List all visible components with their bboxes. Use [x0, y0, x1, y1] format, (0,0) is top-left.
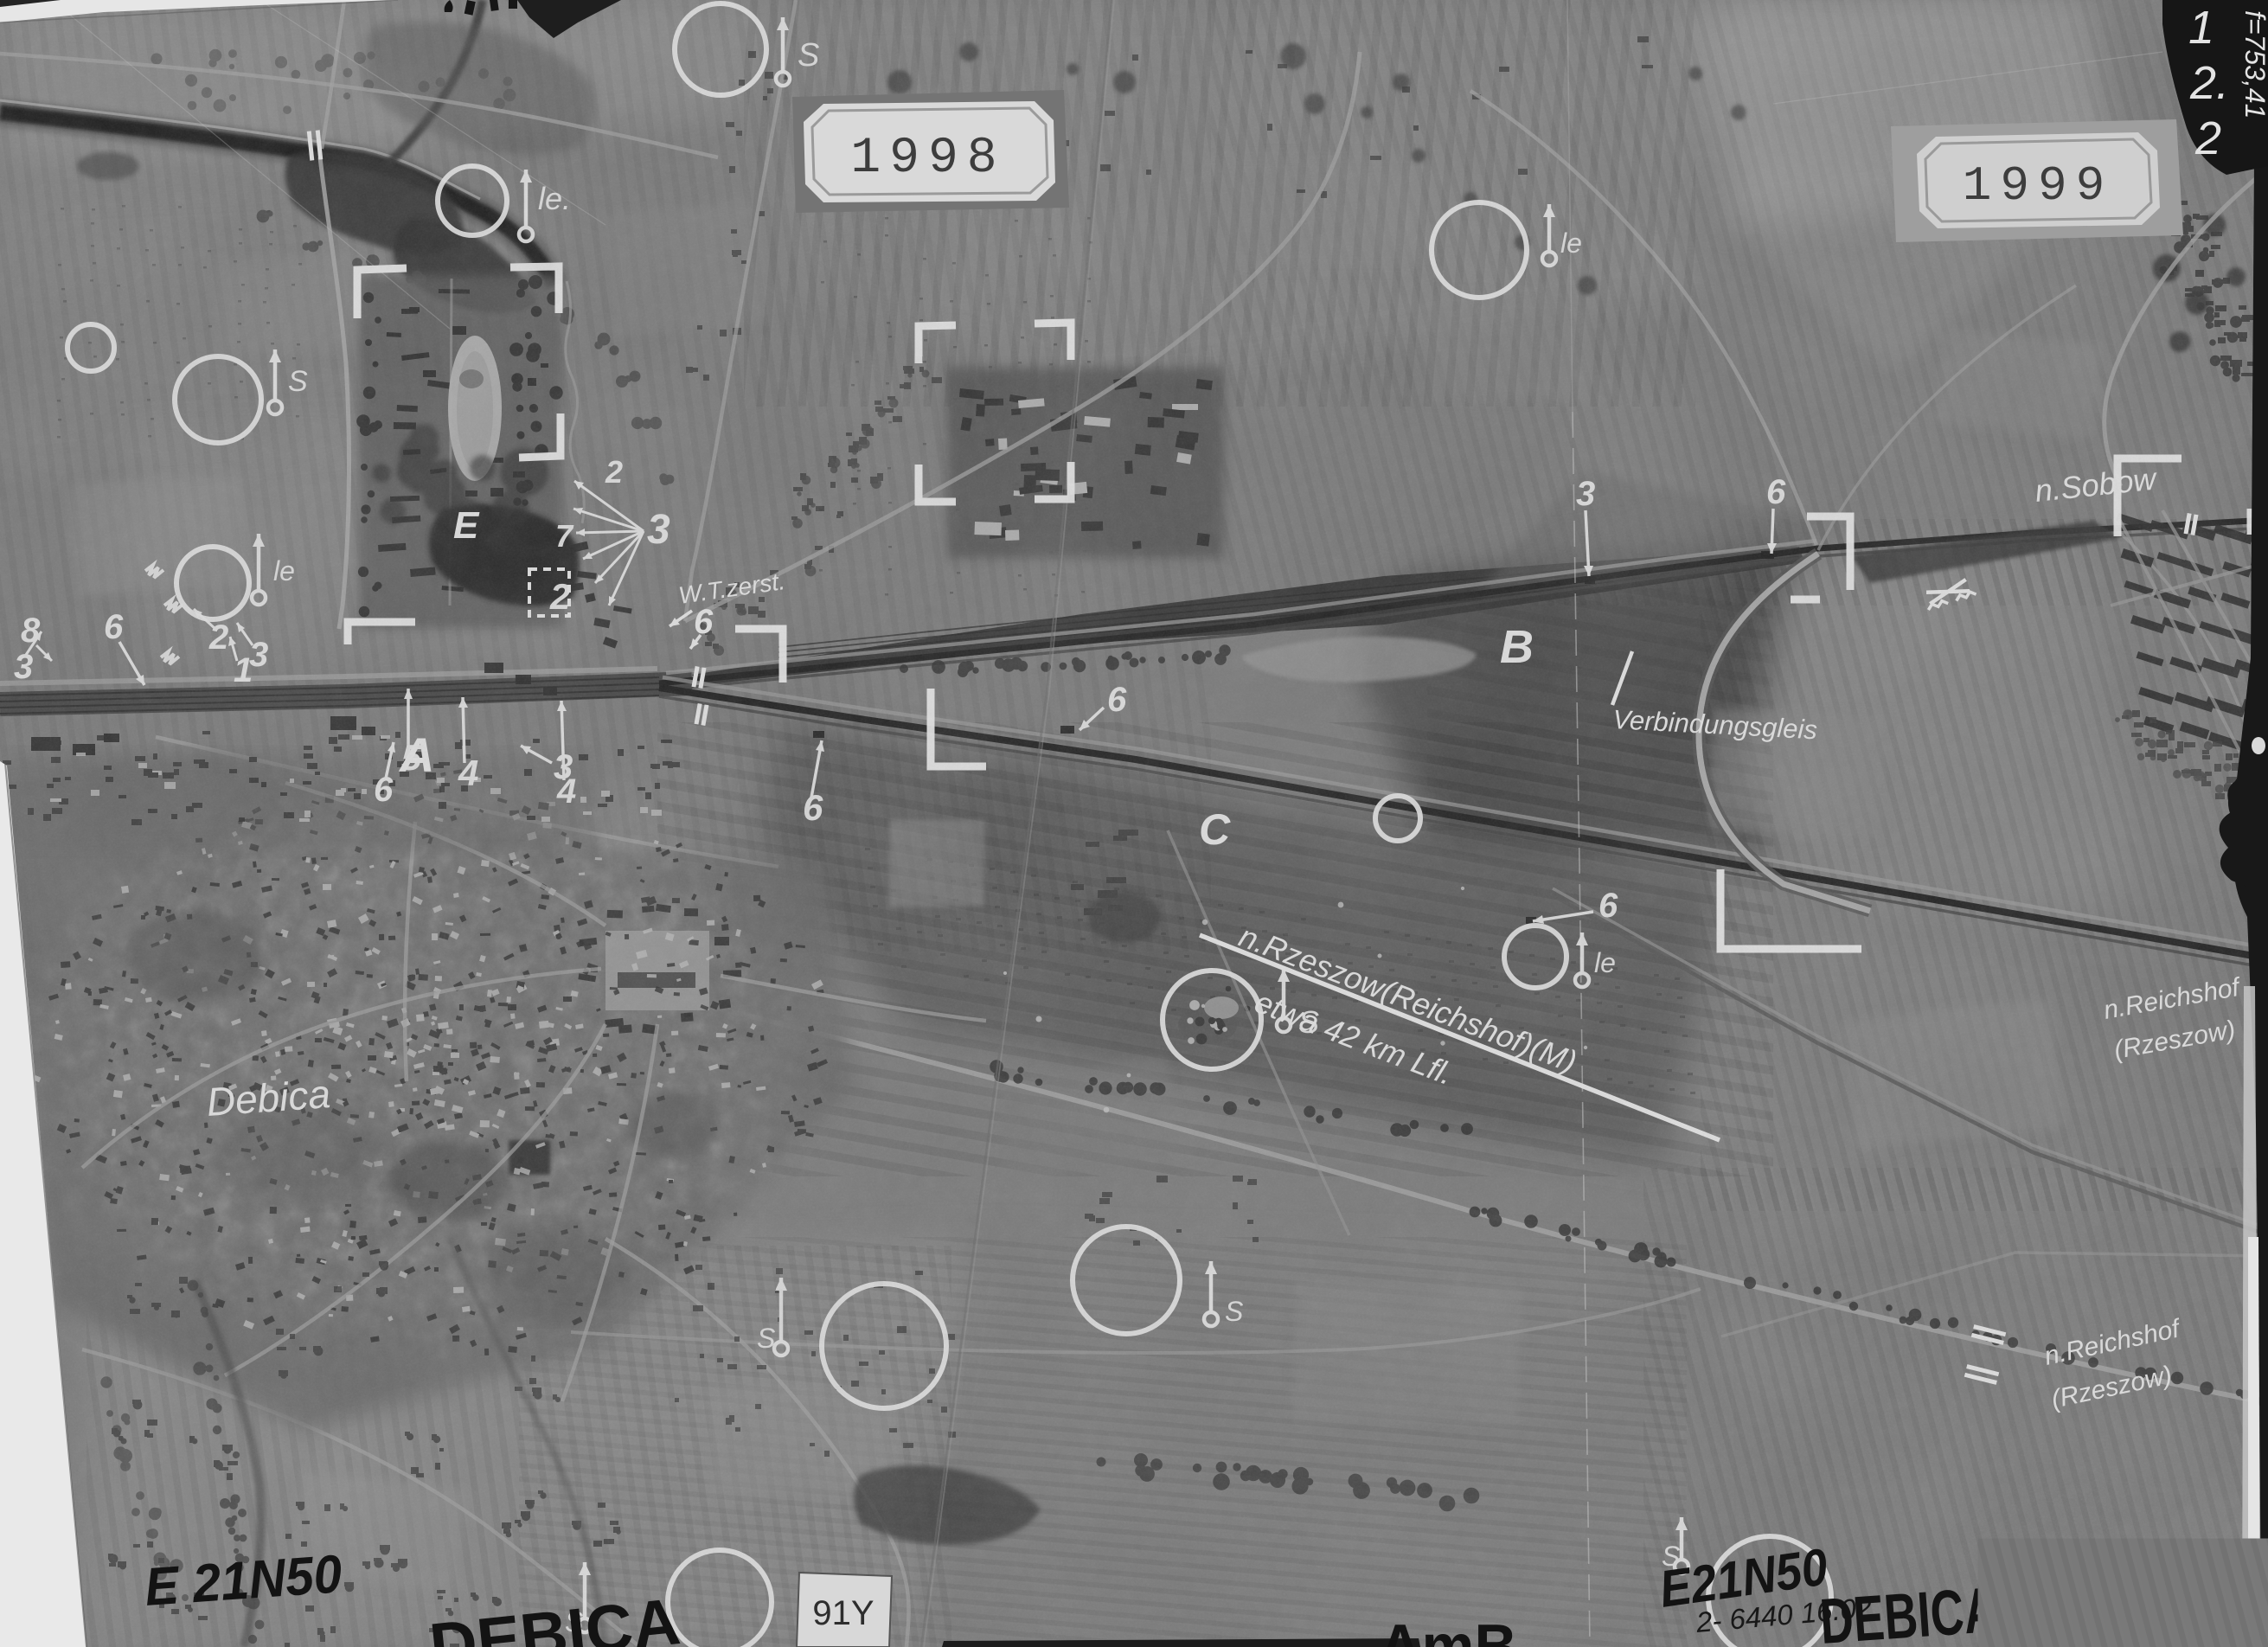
svg-text:AmB: AmB	[1379, 1612, 1517, 1647]
svg-text:91Y: 91Y	[812, 1594, 874, 1632]
svg-text:2.: 2.	[2189, 57, 2229, 109]
svg-text:1998: 1998	[850, 131, 1005, 187]
svg-text:1999: 1999	[1963, 158, 2113, 214]
svg-text:2: 2	[2194, 112, 2221, 164]
svg-text:DEBICA: DEBICA	[1817, 1573, 1999, 1647]
svg-text:1: 1	[2188, 2, 2214, 54]
svg-text:f=753,41: f=753,41	[2239, 10, 2268, 119]
